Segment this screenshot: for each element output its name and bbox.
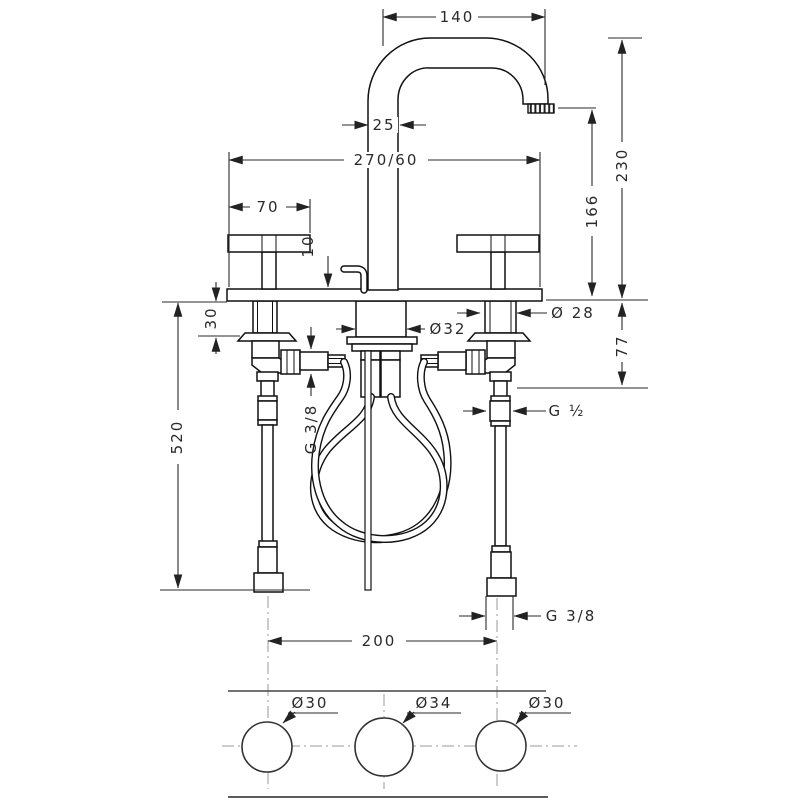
- dim-drain-dia: Ø32: [430, 320, 467, 338]
- handle-left: [228, 235, 310, 289]
- plan-hole-center-label: Ø34: [416, 694, 453, 712]
- hole-circle-right: [476, 721, 526, 771]
- dim-height-spout: 166: [583, 194, 601, 229]
- mounting-plate: [227, 289, 542, 301]
- dim-plate: 270/60: [354, 151, 419, 169]
- plan-hole-left-label: Ø30: [292, 694, 329, 712]
- dim-rod-offset: 10: [299, 234, 317, 257]
- dimension-lines: [160, 9, 648, 789]
- label-thread-center: G 3/8: [302, 404, 320, 455]
- dim-hole-spacing: 200: [362, 632, 397, 650]
- dim-deck-thickness: 30: [202, 306, 220, 329]
- plan-view: [222, 691, 577, 797]
- dim-spout-reach: 140: [440, 8, 475, 26]
- dim-handle-width: 70: [256, 198, 279, 216]
- hole-circle-center: [355, 718, 413, 776]
- dim-shank-dia: Ø 28: [551, 304, 595, 322]
- faucet-technical-drawing: 140 25 270/60 70 10 230 166 77 30 520 Ø3…: [0, 0, 800, 800]
- supply-pipe-left: [254, 372, 283, 592]
- dim-height-total: 230: [613, 148, 631, 183]
- plan-hole-right-label: Ø30: [529, 694, 566, 712]
- handle-right: [457, 235, 539, 289]
- lift-rod: [365, 351, 371, 590]
- dim-hose-length: 520: [168, 420, 186, 455]
- drawing-canvas: 140 25 270/60 70 10 230 166 77 30 520 Ø3…: [0, 0, 800, 800]
- hole-circle-left: [242, 722, 292, 772]
- label-thread-bottom: G 3/8: [546, 607, 597, 625]
- dim-depth-connection: 77: [613, 334, 631, 357]
- label-thread-side: G ½: [549, 402, 586, 420]
- valve-left: [238, 301, 345, 374]
- supply-pipe-right: [487, 372, 516, 596]
- drain-assembly: [347, 301, 417, 397]
- pop-up-rod: [344, 269, 364, 290]
- dim-spout-pipe: 25: [372, 116, 395, 134]
- aerator: [528, 104, 554, 113]
